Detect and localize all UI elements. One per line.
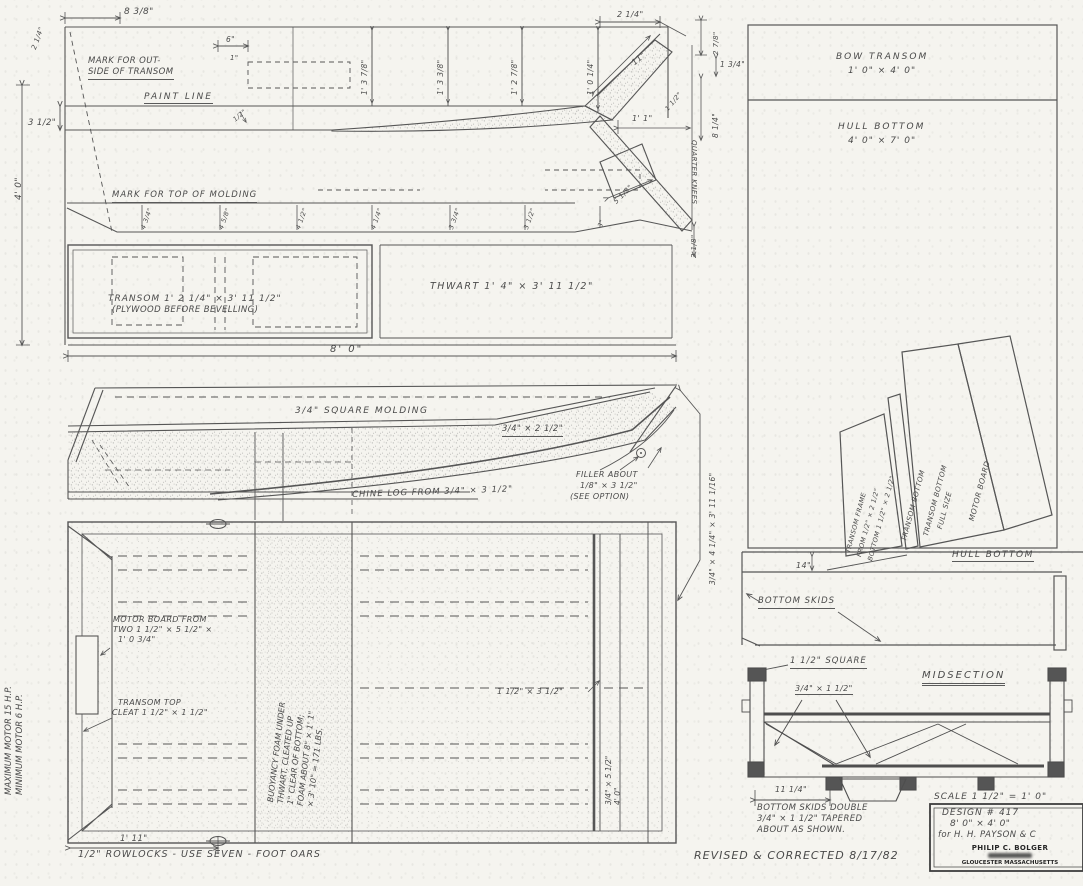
dim-4-0-height: 4' 0"	[14, 177, 24, 200]
plan-side-dim-line1: 3/4" × 5 1/2"	[604, 756, 613, 805]
revision-note: REVISED & CORRECTED 8/17/82	[694, 850, 899, 863]
blueprint-sheet: 2 1/4" 8 3/8" 6" 1" MARK FOR OUT- SIDE O…	[0, 0, 1083, 886]
rowlocks-note: 1/2" ROWLOCKS - USE SEVEN - FOOT OARS	[78, 850, 321, 861]
transom-panel-sublabel: (PLYWOOD BEFORE BEVELLING)	[112, 306, 258, 316]
design-number: DESIGN # 417	[942, 808, 1019, 818]
dim-8-1-4: 8 1/4"	[712, 113, 721, 138]
designer-stamp-city: GLOUCESTER MASSACHUSETTS	[950, 860, 1070, 866]
hull-bottom-label: HULL BOTTOM	[838, 122, 925, 132]
motor-hp-max: MAXIMUM MOTOR 15 H.P.	[4, 686, 15, 795]
dim-14: 14"	[796, 561, 811, 570]
midsection-title: MIDSECTION	[922, 670, 1005, 686]
dim-8-3-8: 8 3/8"	[124, 7, 154, 17]
dim-2-7-8: 2 7/8"	[712, 31, 720, 55]
plan-side-dim-line2: 4' 0"	[613, 756, 622, 805]
square-molding-label: 3/4" SQUARE MOLDING	[295, 406, 428, 416]
dim-1-11: 1' 11"	[120, 835, 148, 845]
bottom-skids-label: BOTTOM SKIDS	[758, 597, 835, 609]
hull-bottom-edge-label: HULL BOTTOM	[952, 550, 1034, 562]
dim-2-1-8: 2 1/8"	[690, 234, 698, 258]
thwart-panel-label: THWART 1' 4" × 3' 11 1/2"	[430, 282, 594, 293]
dim-1-1: 1' 1"	[632, 114, 653, 123]
skid-note-line3: ABOUT AS SHOWN.	[757, 826, 845, 836]
designer-stamp-name: PHILIP C. BOLGER	[952, 844, 1068, 852]
gunwale-dim-label: 3/4" × 2 1/2"	[502, 425, 563, 437]
design-client: for H. H. PAYSON & C	[938, 831, 1036, 841]
motor-hp-note: MAXIMUM MOTOR 15 H.P. MINIMUM MOTOR 6 H.…	[4, 686, 25, 795]
motor-board-note-line3: 1' 0 3/4"	[118, 635, 156, 644]
square-gunwale-note: 1 1/2" SQUARE	[790, 657, 867, 669]
side-panel-dim-label: 3/4" × 4 1/4" × 3' 11 1/16"	[709, 472, 718, 585]
bow-transom-size: 1' 0" × 4' 0"	[848, 66, 916, 76]
dim-11-1-4: 11 1/4"	[775, 785, 807, 794]
filler-note-line1: FILLER ABOUT	[576, 470, 638, 479]
plan-side-dim: 3/4" × 5 1/2" 4' 0"	[604, 756, 623, 805]
scale-note: SCALE 1 1/2" = 1' 0"	[934, 792, 1047, 802]
motor-hp-min: MINIMUM MOTOR 6 H.P.	[15, 686, 26, 795]
dim-1-3-4: 1 3/4"	[720, 61, 745, 70]
drawing-linework	[0, 0, 1083, 886]
filler-note-line2: 1/8" × 3 1/2"	[580, 481, 638, 490]
note-outside-transom-line1: MARK FOR OUT-	[88, 57, 161, 67]
bow-transom-label: BOW TRANSOM	[836, 52, 928, 62]
dim-8-0-length: 8' 0"	[330, 344, 363, 356]
paint-line-label: PAINT LINE	[144, 92, 213, 104]
midsection-chine-dim: 3/4" × 1 1/2"	[795, 684, 853, 695]
designer-stamp-smudge	[988, 853, 1032, 858]
filler-note-line3: (SEE OPTION)	[570, 492, 629, 501]
dim-2-1-4-bow: 2 1/4"	[617, 10, 644, 19]
note-outside-transom-line2: SIDE OF TRANSOM	[88, 68, 174, 80]
motor-board-note-line1: MOTOR BOARD FROM	[113, 615, 207, 624]
mark-top-molding-label: MARK FOR TOP OF MOLDING	[112, 191, 257, 203]
design-size: 8' 0" × 4' 0"	[950, 819, 1010, 829]
station-dim-4: 1' 0 1/4"	[587, 60, 596, 96]
station-dim-1: 1' 3 7/8"	[361, 60, 370, 96]
skid-note-line1: BOTTOM SKIDS DOUBLE	[757, 804, 868, 814]
transom-cleat-note-line1: TRANSOM TOP	[118, 698, 181, 707]
transom-panel-label: TRANSOM 1' 2 1/4" × 3' 11 1/2"	[108, 294, 282, 304]
quarter-knees-label: QUARTER KNEES	[690, 140, 698, 204]
dim-3-1-2: 3 1/2"	[28, 119, 56, 129]
motor-board-note-line2: TWO 1 1/2" × 5 1/2" ×	[113, 625, 212, 634]
hull-bottom-size: 4' 0" × 7' 0"	[848, 136, 916, 146]
dim-6: 6"	[226, 36, 235, 45]
station-dim-2: 1' 3 3/8"	[437, 60, 446, 96]
thwart-dim-label: 1 1/2" × 3 1/2"	[497, 687, 563, 696]
dim-1: 1"	[230, 54, 238, 62]
plan-view-linework	[68, 520, 676, 855]
station-dim-3: 1' 2 7/8"	[511, 60, 520, 96]
skid-note-line2: 3/4" × 1 1/2" TAPERED	[757, 815, 862, 825]
transom-cleat-note-line2: CLEAT 1 1/2" × 1 1/2"	[112, 708, 208, 717]
